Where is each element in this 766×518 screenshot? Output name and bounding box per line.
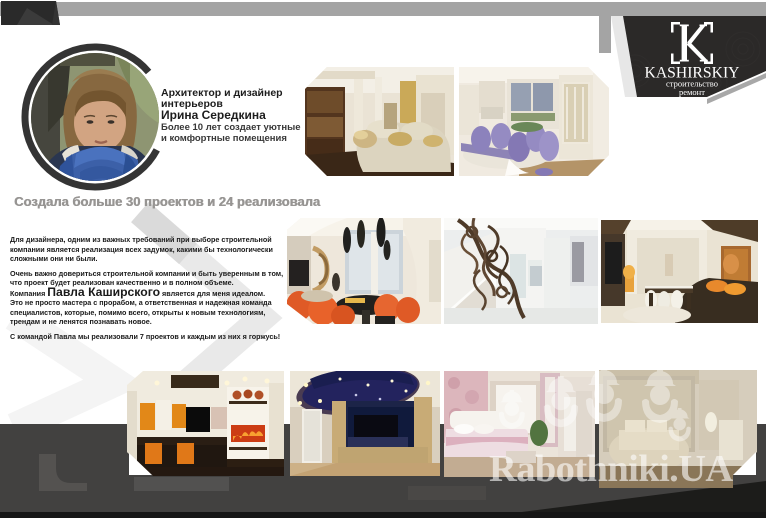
svg-text:ремонт: ремонт — [679, 87, 705, 97]
